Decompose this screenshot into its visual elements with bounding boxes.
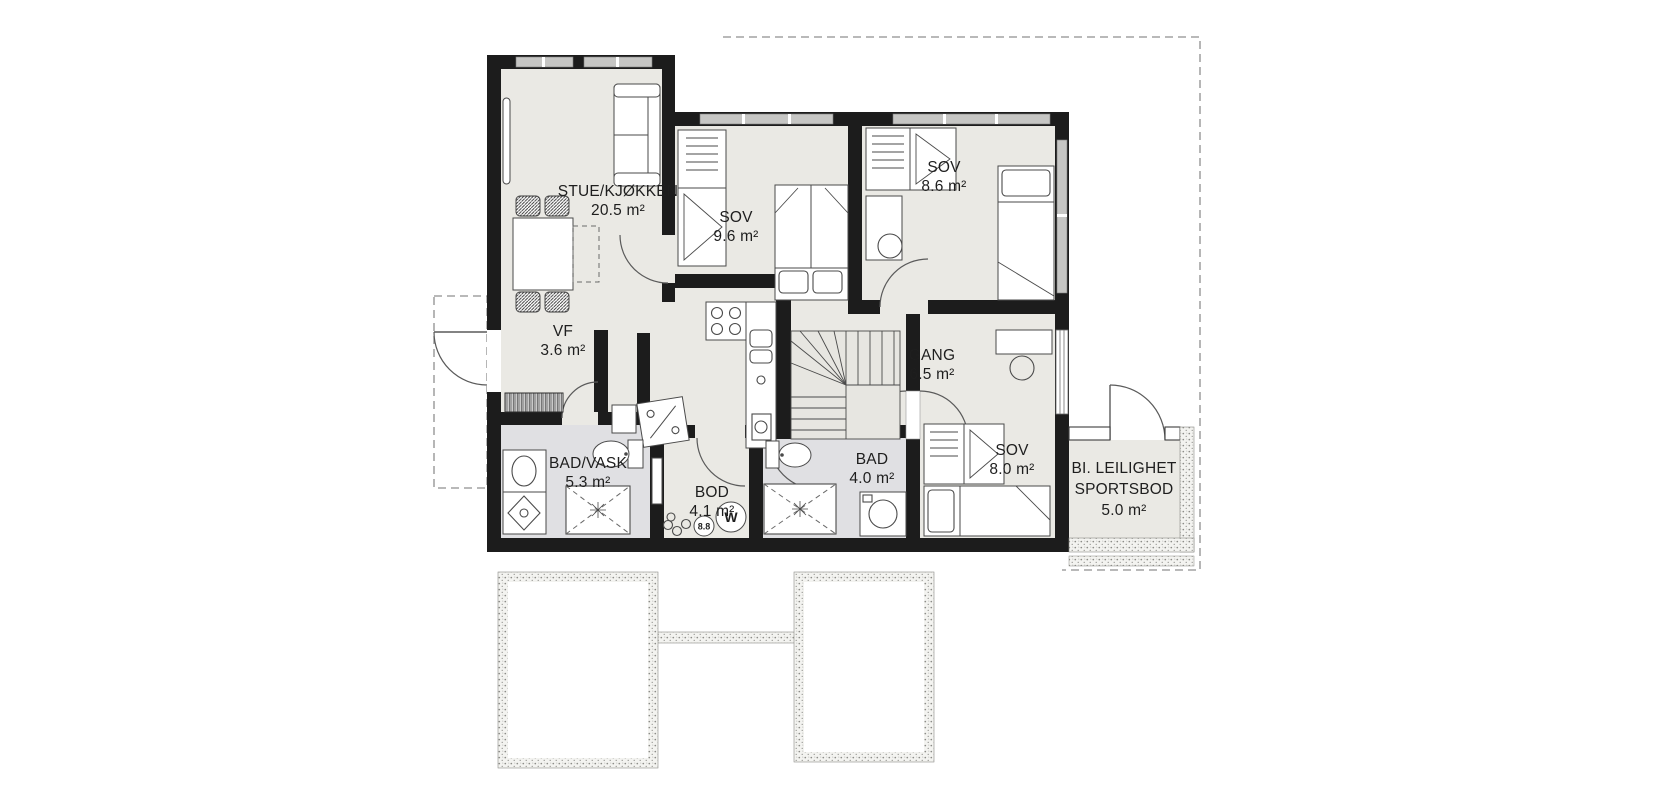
room-name: BAD/VASK (549, 455, 627, 472)
opening-sov2 (880, 300, 928, 314)
foundation-right-inner (804, 582, 924, 752)
room-name: SOV (995, 442, 1029, 459)
room-name: GANG (909, 347, 955, 364)
window-sov3-right (1056, 330, 1068, 414)
washbasin (503, 450, 546, 492)
room-name: BI. LEILIGHET (1071, 460, 1176, 477)
room-name: SOV (719, 209, 753, 226)
room-area: 8.6 m² (921, 178, 966, 195)
wall-vf-badvask (487, 412, 562, 425)
shower (566, 486, 630, 534)
cabinet (612, 405, 636, 433)
toilet (766, 441, 811, 468)
meter-label: 8.8 (698, 522, 711, 532)
desk (866, 196, 902, 260)
floor-plan-canvas: 8.8 W (0, 0, 1670, 800)
room-name: BAD (856, 451, 888, 468)
room-name: SOV (927, 159, 961, 176)
wall-left (487, 55, 501, 552)
wall-sov1-kitchen (675, 274, 791, 288)
pillow (779, 271, 808, 293)
sportsbod-door (1110, 385, 1165, 440)
opening-entry (487, 330, 501, 392)
wall-bottom (487, 538, 1069, 552)
opening-sov1 (662, 235, 675, 283)
sportsbod-apron (1069, 556, 1194, 566)
wall-sov1-sov2 (848, 126, 862, 314)
electrical-cabinet (637, 397, 689, 448)
wardrobe (678, 130, 726, 266)
window-living-left-bay (503, 98, 510, 184)
entry-door (434, 332, 487, 385)
pillow (928, 490, 954, 532)
room-name-2: SPORTSBOD (1075, 481, 1174, 498)
foundation-outlines (498, 572, 934, 768)
single-bed (998, 166, 1054, 300)
wall-niche (652, 458, 662, 504)
pillow (813, 271, 842, 293)
room-area: 4.0 m² (849, 470, 894, 487)
room-area: 6.5 m² (909, 366, 954, 383)
room-area: 5.0 m² (1101, 502, 1146, 519)
kitchen-sink (750, 330, 772, 347)
window-living-top-1 (516, 57, 573, 67)
room-area: 8.0 m² (989, 461, 1034, 478)
wall-sov3-bad (906, 438, 920, 538)
double-bed (775, 185, 848, 300)
sportsbod-top-wall-right (1165, 427, 1180, 440)
room-area: 4.1 m² (689, 503, 734, 520)
chair (516, 292, 540, 312)
staircase (791, 331, 900, 439)
washing-machine (860, 492, 906, 536)
wall-kitchen-stairs (776, 288, 791, 439)
floor-plan-drawing: 8.8 W (0, 0, 1670, 800)
sportsbod-right-wall (1180, 427, 1194, 552)
room-name: BOD (695, 484, 729, 501)
sofa (614, 84, 660, 186)
room-area: 5.3 m² (565, 474, 610, 491)
window-sov1-top (700, 114, 833, 124)
shower (764, 484, 836, 534)
sportsbod-top-wall-left (1069, 427, 1110, 440)
foundation-left-inner (508, 582, 648, 758)
chair (516, 196, 540, 216)
room-area: 9.6 m² (713, 228, 758, 245)
foundation-connector (650, 632, 800, 643)
opening-gang-jamb (906, 391, 920, 439)
window-sov2-top (893, 114, 1050, 124)
laundry-sink (503, 492, 546, 534)
porch-outline (434, 296, 487, 488)
opening-badvask (562, 412, 598, 425)
wall-vf-stub (594, 330, 608, 412)
stove (706, 302, 746, 340)
window-sov2-right (1057, 140, 1067, 293)
room-name: STUE/KJØKKEN (558, 183, 678, 200)
radiator (505, 393, 563, 412)
room-name: VF (553, 323, 573, 340)
desk (996, 330, 1052, 354)
pillow (1002, 170, 1050, 196)
chair (545, 292, 569, 312)
window-living-top-2 (584, 57, 652, 67)
room-area: 3.6 m² (540, 342, 585, 359)
sportsbod-bottom-wall (1069, 538, 1194, 552)
single-bed (924, 486, 1050, 536)
room-area: 20.5 m² (591, 202, 645, 219)
